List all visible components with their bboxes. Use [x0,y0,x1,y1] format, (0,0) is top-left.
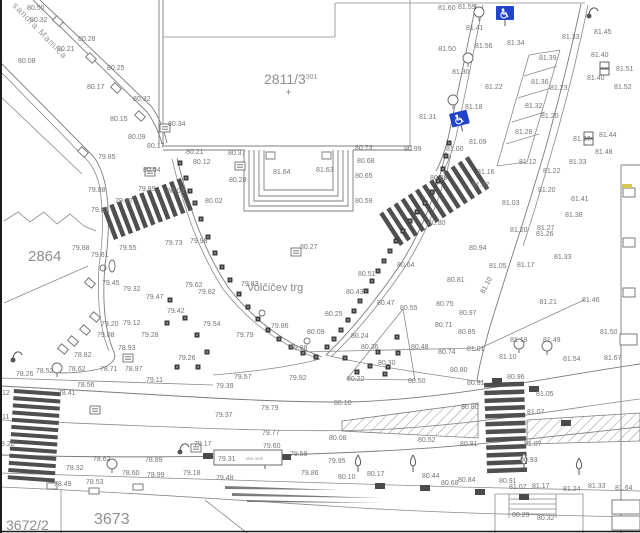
spot-height-label: 78.89 [145,457,163,464]
spot-height-label: 79.95 [328,458,346,465]
pavement-marker-icon [408,219,413,224]
spot-height-label: 78.62 [93,456,111,463]
spot-height-label: 79.54 [203,321,221,328]
spot-height-label: 79.62 [185,282,203,289]
spot-height-label: 80.17 [147,143,165,150]
road-markings [225,486,382,503]
spot-height-label: 80.03 [167,188,185,195]
marker-dot [442,168,443,169]
spot-height-label: 79.26 [178,355,196,362]
pavement-marker-icon [368,364,373,369]
spot-height-label: 81.45 [594,29,612,36]
spot-height-label: 81.46 [582,297,600,304]
spot-height-label: 78.32 [66,465,84,472]
spot-height-label: 80.50 [408,378,426,385]
manhole-frame [123,354,133,362]
spot-height-label: 80.73 [355,145,373,152]
dark-grate-icon [492,378,502,384]
spot-height-label: 81.52 [614,84,632,91]
spot-height-label: 80.48 [411,344,429,351]
spot-height-label: 78.53 [86,479,104,486]
tree-crown [463,53,473,63]
spot-height-label: 8.20 [1,441,15,448]
street-lamp-icon [11,352,23,363]
manhole-frame [235,162,245,170]
spot-height-label: 81.63 [316,167,334,174]
manhole-icon [90,406,100,414]
marker-dot [365,290,366,291]
pavement-marker-icon [370,279,375,284]
crosswalk-stripe [485,413,525,419]
edge-box [612,500,640,514]
pavement-marker-icon [447,141,452,146]
crosswalk-stripe [486,436,526,442]
spot-height-label: 80.81 [460,441,478,448]
spot-height-label: 81.07 [472,182,490,189]
marker-dot [448,142,449,143]
spot-height-label: 78.97 [125,366,143,373]
spot-height-label: 79.79 [236,332,254,339]
pavement-marker-icon [246,305,251,310]
spot-height-label: 78.93 [118,345,136,352]
spot-height-label: 80.28 [229,177,247,184]
spot-height-label: 79.88 [290,345,308,352]
marker-dot [200,218,201,219]
spot-height-label: 79.17 [194,441,212,448]
marker-dot [206,351,207,352]
spot-height-label: 81.01 [467,346,485,353]
lamp-arm [13,352,22,358]
marker-dot [397,352,398,353]
pavement-marker-icon [199,217,204,222]
spot-height-label: 80.15 [110,116,128,123]
spot-height-label: 81.00 [446,146,464,153]
spot-height-label: 81.56 [475,43,493,50]
spot-height-label: 81.28 [515,129,533,136]
crosswalk-stripe [9,461,56,468]
spot-height-label: 80.32 [133,96,151,103]
marker-dot [377,351,378,352]
spot-height-label: 79.61 [91,252,109,259]
spot-height-label: 78.71 [100,366,118,373]
kerb-ne-outer [33,0,162,144]
manhole-icon [123,354,133,362]
stairs-south-structure [495,494,583,533]
edge-box [623,188,635,197]
sidewalk-north-left [0,378,213,385]
entrance-steps [244,150,353,211]
spot-height-label: 81.50 [600,329,618,336]
pavement-marker-icon [376,269,381,274]
spot-height-label: 80.25 [107,65,125,72]
spot-height-label: 79.72 [115,198,133,205]
spot-height-label: 81.10 [499,354,517,361]
spot-height-label: 81.20 [510,227,528,234]
spot-height-label: 79.79 [261,405,279,412]
marker-dot [197,366,198,367]
sidewalk-line-mid [213,359,320,375]
spot-height-label: 80.81 [447,277,465,284]
spot-height-label: 80.65 [355,173,373,180]
spot-height-label: 79.92 [289,375,307,382]
pavement-marker-icon [382,259,387,264]
spot-height-label: 80.80 [450,367,468,374]
pavement-marker-icon [314,355,319,360]
spot-height-label: 80.99 [404,146,422,153]
spot-height-label: 80.94 [469,245,487,252]
manhole-icon [235,162,245,170]
pavement-marker-icon [383,372,388,377]
spot-height-label: 80.22 [347,376,365,383]
kerb-drain-icon [78,147,89,158]
spot-height-label: 81.09 [469,139,487,146]
spot-height-label: 81.05 [489,263,507,270]
spot-height-label: 79.11 [146,377,163,384]
pavement-marker-icon [388,249,393,254]
spot-height-label: 81.33 [588,483,606,490]
spot-height-label: 78.60 [122,470,140,477]
spot-height-label: 81.18 [510,337,528,344]
yellow-highlight-tick [622,184,632,188]
spot-height-label: 80.27 [300,244,318,251]
pavement-marker-icon [266,328,271,333]
wheelchair-head [502,8,505,11]
spot-height-label: 79.55 [119,245,137,252]
handicap-parking-icon [449,110,471,134]
edge-box [623,288,635,297]
spot-height-label: 79.89 [138,186,156,193]
spot-height-label: ·81.50 [436,46,456,53]
spot-height-label: 78.99 [147,472,165,479]
marker-dot [179,162,180,163]
marker-dot [189,190,190,191]
spot-height-label: 81.26 [536,231,554,238]
pavement-marker-icon [401,229,406,234]
pavement-marker-icon [183,316,188,321]
pavement-marker-icon [394,239,399,244]
traffic-island-triangle [347,309,415,380]
marker-dot [229,279,230,280]
pavement-marker-icon [415,210,420,215]
spot-height-label: 81.33 [554,254,572,261]
marker-dot [344,357,345,358]
road-ne-east-kerb-inner [523,5,588,246]
spot-height-label: 78.41 [58,390,76,397]
crosswalk-stripe [11,425,58,432]
crosswalk-stripe [485,397,525,403]
pavement-marker-icon [196,365,201,370]
spot-height-label: 81.07 [524,441,542,448]
spot-height-label: 81.20 [541,113,559,120]
crosswalk-stripe [486,444,526,450]
spot-height-label: 81.54 [563,356,581,363]
spot-height-label: 80.09 [307,329,325,336]
spot-height-label: 80.68 [441,480,459,487]
spot-height-label: 80.10 [334,400,352,407]
white-grate-icon [133,484,143,490]
hatched-road-area [342,403,478,438]
lane-marking-wedge [232,493,382,498]
tree-conifer-icon [355,455,360,472]
kerb-drain-icon [68,336,79,346]
pavement-marker-icon [346,318,351,323]
crosswalk-zebra [379,156,489,246]
eko-otok-box: 79.31 eko otok [214,450,282,465]
spot-height-label: 80.96 [507,374,525,381]
spot-height-label: 81.41 [571,196,589,203]
spot-height-label: 81.16 [477,169,495,176]
crosswalk-stripe [487,467,527,473]
spot-height-label: 80.21 [186,149,204,156]
spot-height-label: 80.75 [436,301,454,308]
spot-height-label: 81.20 [538,187,556,194]
spot-height-label: 79.47 [146,294,164,301]
kerb-drain-icon [111,83,122,94]
spot-height-label: 79.45 [102,280,120,287]
spot-height-label: 80.08 [18,58,36,65]
spot-height-label: 80.89 [430,175,448,182]
pavement-marker-icon [277,337,282,342]
spot-height-label: 79.28 [141,332,159,339]
place-name-label: Volčičev trg [247,282,303,294]
spot-height-label: 81.60 [438,5,456,12]
marker-dot [369,365,370,366]
crosswalk-stripe [12,411,59,418]
tree-deciduous-icon [463,53,473,67]
parking-sign-icon [600,62,609,75]
boundary-sw [0,96,82,174]
pavement-marker-icon [339,328,344,333]
spot-height-label: 80.80 [461,404,479,411]
spot-height-label: 81.40 [591,52,609,59]
street-lamp-icon [178,444,190,455]
eko-box-elevation: 79.31 [218,456,236,463]
spot-height-label: 80.30 [378,360,396,367]
lamp-head [11,358,16,363]
parcel-lines-top [163,0,585,146]
tree-conifer-icon [410,455,415,472]
tree-crown [576,458,581,469]
spot-height-label: 12 [2,390,10,397]
marker-dot [402,230,403,231]
marker-dot [359,300,360,301]
lamp-head [587,14,592,19]
spot-height-label: 81.17 [517,262,535,269]
crosswalk-stripe [484,389,524,395]
spot-height-label: 79.18 [183,470,201,477]
spot-height-label: 81.59 [458,4,476,11]
lamp-arm [589,8,598,14]
marker-dot [214,252,215,253]
spot-height-label: 81.30 [452,69,470,76]
crosswalk-stripe [485,421,525,427]
handicap-sign-plate [449,110,470,128]
marker-dot [395,240,396,241]
kerb-drain-icon [58,344,69,354]
spot-height-label: 80.97 [459,310,477,317]
kerb-drain-icon [135,111,146,122]
spot-height-label: 79.77 [262,430,280,437]
bollard-icon [109,260,115,272]
marker-dot [383,260,384,261]
spot-height-label: 78.62 [68,366,86,373]
marker-dot [396,336,397,337]
dark-grate-icon [475,489,485,495]
spot-height-label: 80.36 [361,344,379,351]
pavement-marker-icon [423,201,428,206]
marker-dot [194,202,195,203]
spot-height-label: 80.68 [357,158,375,165]
crosswalk-stripe [485,405,525,411]
pavement-marker-icon [430,190,435,195]
parcel-number-label: 3672/2 [6,517,49,533]
tree-crown [410,455,415,466]
spot-height-label: 81.36 [531,79,549,86]
pavement-marker-icon [195,333,200,338]
street-lamp-icon [587,8,599,19]
edge-box [612,516,640,530]
sign-box [600,62,609,68]
spot-height-label: 79.37 [215,412,233,419]
pavement-marker-icon [441,167,446,172]
marker-dot [384,373,385,374]
pavement-marker-icon [220,265,225,270]
spot-height-label: 80.64 [397,262,415,269]
spot-height-label: 78.26 [16,371,34,378]
marker-dot [353,310,354,311]
marker-dot [221,266,222,267]
kerb-drain-icon [90,312,101,322]
marker-dot [445,155,446,156]
spot-height-label: 81.23 [550,85,568,92]
tree-deciduous-icon [448,95,458,109]
pole-icon [304,338,310,344]
spot-height-label: 81.31 [419,114,437,121]
sign-post [461,125,462,131]
spot-height-label: 81.32 [525,103,543,110]
spot-height-label: 80.74 [438,349,456,356]
marker-dot [185,177,186,178]
pavement-marker-icon [178,161,183,166]
pavement-marker-icon [444,154,449,159]
dark-grate-icon [375,483,385,489]
spot-height-label: 81.51 [616,66,634,73]
parcel-2864-zigzag [4,212,96,231]
kerb-drain-icon [85,278,96,288]
marker-dot [169,299,170,300]
marker-dot [409,220,410,221]
spot-height-label: 79.86 [271,323,289,330]
spot-height-label: 80.25 [325,311,343,318]
spot-height-label: 79.98 [190,238,208,245]
spot-height-label: 81.64 [273,169,291,176]
crosswalk-stripe [12,418,59,425]
survey-cross-mark [286,90,291,95]
spot-height-label: 81.49 [543,337,561,344]
pavement-marker-icon [193,201,198,206]
pavement-marker-icon [396,351,401,356]
parcel-number-label: 3673 [94,511,130,528]
plaza-arc-left [177,158,322,357]
spot-height-label: 81.18 [465,104,483,111]
kerb-west [0,62,115,373]
spot-height-label: 78.49 [54,481,72,488]
parcel-number-label: 2811/3301 [264,71,318,87]
pavement-marker-icon [325,345,330,350]
plaza-arc-right [326,152,446,355]
crosswalk-stripe [8,475,55,482]
spot-height-label: 79.85 [98,154,116,161]
spot-height-label: ·81.21 [537,299,557,306]
spot-height-label: 80.93 [520,457,538,464]
crosswalk-stripe [10,439,57,446]
crosswalk-stripe [13,403,60,410]
crosswalk-stripe [14,389,61,396]
manhole-frame [90,406,100,414]
spot-height-label: 79.20 [101,321,119,328]
crosswalk-zebra [8,389,61,482]
spot-height-label: 79.82 [198,289,216,296]
spot-height-label: 81.33 [569,159,587,166]
dark-grate-icon [561,420,571,426]
crosswalk-stripe [10,446,57,453]
pavement-marker-icon [395,335,400,340]
marker-dot [431,191,432,192]
marker-dot [302,352,303,353]
spot-height-label: 81.03 [502,200,520,207]
pavement-marker-icon [165,321,170,326]
marker-dot [278,338,279,339]
spot-height-label: 79.88 [72,245,90,252]
spot-height-label: 79.42 [167,308,185,315]
kerb-drain-icon [53,16,64,27]
marker-dot [356,371,357,372]
spot-height-label: 80.47 [377,300,395,307]
spot-height-label: 81.67 [604,355,622,362]
spot-height-label: 79.60 [263,443,281,450]
edge-box [620,334,637,345]
tree-conifer-icon [576,458,581,475]
marker-dot [267,329,268,330]
marker-dot [176,366,177,367]
spot-height-label: 81.48 [595,149,613,156]
spot-height-label: 80.50 [27,5,45,12]
spot-height-label: 80.84 [458,477,476,484]
spot-height-label: 11 [2,414,9,421]
spot-height-labels-layer: 80.5080.3280.2880.2180.0880.2580.1780.32… [1,4,634,522]
spot-height-label: 80.43 [346,289,364,296]
marker-dot [184,317,185,318]
pavement-marker-icon [352,309,357,314]
plaza-arc-left-inner [172,159,319,359]
spot-height-label: 81.38 [565,212,583,219]
spot-height-label: 81.07 [527,409,545,416]
marker-dot [238,293,239,294]
crosswalk-stripe [9,454,56,461]
pavement-marker-icon [168,298,173,303]
spot-height-label-rotated: 81.10 [480,276,494,295]
spot-height-label: 80.08 [329,435,347,442]
edge-box [623,238,635,247]
marker-dot [347,319,348,320]
pavement-marker-icon [184,176,189,181]
pavement-marker-icon [237,292,242,297]
spot-height-label: 79.88 [88,187,106,194]
pavement-marker-icon [358,299,363,304]
spot-height-label: 80.28 [78,36,96,43]
marker-dot [340,329,341,330]
spot-height-label: 80.81 [467,380,485,387]
